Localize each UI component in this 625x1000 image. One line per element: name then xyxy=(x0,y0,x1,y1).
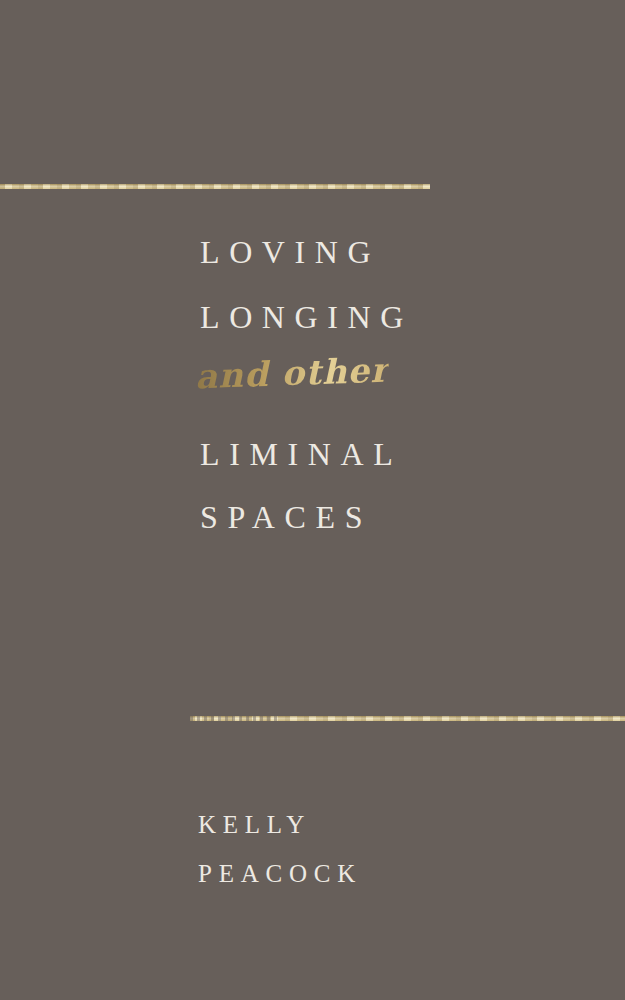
title-script-and-other: and other xyxy=(194,353,389,394)
author-first-name: KELLY xyxy=(198,812,311,837)
title-word-longing: LONGING xyxy=(200,301,413,333)
title-word-spaces: SPACES xyxy=(200,501,372,533)
gold-rule-bottom xyxy=(190,716,625,721)
author-last-name: PEACOCK xyxy=(198,861,362,886)
gold-rule-top xyxy=(0,184,430,189)
title-word-loving: LOVING xyxy=(200,236,380,268)
book-cover: LOVING LONGING and other LIMINAL SPACES … xyxy=(0,0,625,1000)
title-word-liminal: LIMINAL xyxy=(200,438,402,470)
